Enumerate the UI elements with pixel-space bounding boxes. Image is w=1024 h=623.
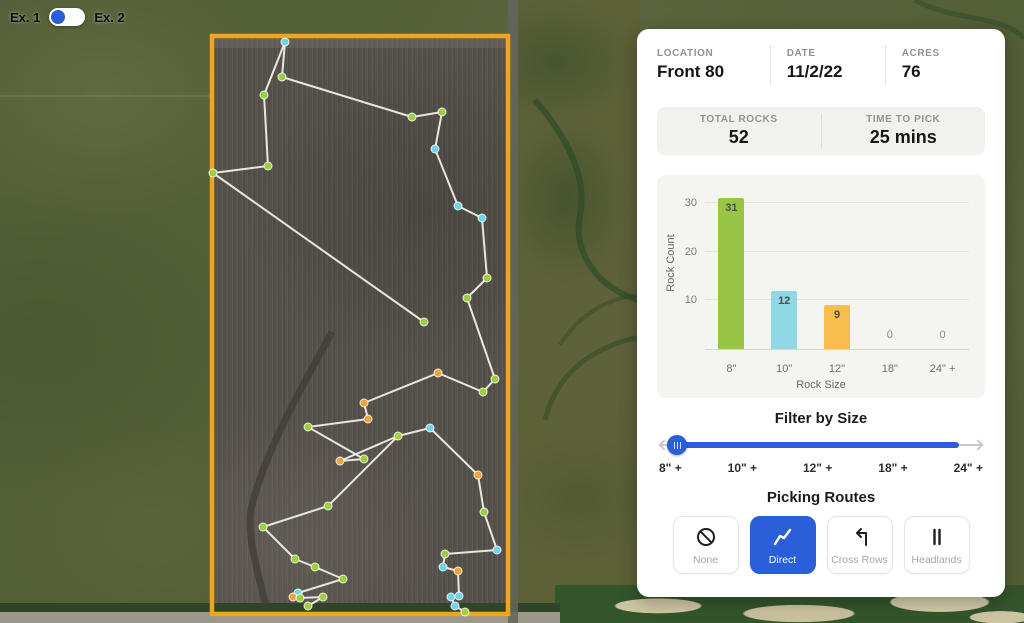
picking-routes-title: Picking Routes [657,489,985,506]
acres-value: 76 [902,62,985,82]
rock-marker-8in [408,113,416,121]
acres-label: ACRES [902,48,985,59]
picking-route-buttons: None Direct Cross Rows Headlands [657,516,985,574]
location-label: LOCATION [657,48,770,59]
rock-marker-10in [439,563,447,571]
rock-marker-8in [311,563,319,571]
zigzag-route-icon [771,525,795,549]
date-label: DATE [787,48,885,59]
bar-12": 9 [824,305,850,349]
rock-marker-10in [478,214,486,222]
time-to-pick-value: 25 mins [870,127,937,148]
rock-marker-12in [336,457,344,465]
example-1-label: Ex. 1 [10,10,40,25]
route-direct-button[interactable]: Direct [750,516,816,574]
rock-marker-10in [431,145,439,153]
size-filter-slider[interactable] [659,433,983,457]
location-field: LOCATION Front 80 [657,45,770,85]
rock-marker-8in [259,523,267,531]
rock-marker-8in [260,91,268,99]
creek [535,100,638,300]
picking-route-path [264,42,497,612]
example-2-label: Ex. 2 [94,10,124,25]
chart-x-axis-label: Rock Size [657,379,985,391]
rock-marker-12in [454,567,462,575]
rock-marker-8in [324,502,332,510]
turn-left-arrow-icon [848,525,872,549]
field-drainage-channel [250,332,332,614]
rock-marker-10in [426,424,434,432]
picking-route-path [213,95,424,322]
tick-24in: 24" + [954,461,983,475]
bar-10": 12 [771,291,797,350]
rock-marker-8in [463,294,471,302]
rock-marker-10in [447,593,455,601]
rock-marker-12in [434,369,442,377]
rock-marker-8in [319,593,327,601]
rock-marker-8in [291,555,299,563]
rock-marker-8in [264,162,272,170]
field-boundary [212,36,508,614]
time-to-pick-label: TIME TO PICK [866,114,940,125]
rock-marker-8in [296,594,304,602]
rock-marker-12in [474,471,482,479]
slider-selected-range [677,442,959,448]
route-cross-rows-label: Cross Rows [831,554,888,566]
rock-marker-12in [360,399,368,407]
route-headlands-button[interactable]: Headlands [904,516,970,574]
field-summary-header: LOCATION Front 80 DATE 11/2/22 ACRES 76 [657,45,985,85]
rock-marker-8in [483,274,491,282]
total-rocks-value: 52 [729,127,749,148]
rock-marker-8in [278,73,286,81]
rock-marker-8in [479,388,487,396]
route-cross-rows-button[interactable]: Cross Rows [827,516,893,574]
no-symbol-icon [694,525,718,549]
rock-marker-12in [364,415,372,423]
date-value: 11/2/22 [787,62,885,82]
rock-marker-8in [339,575,347,583]
total-rocks-label: TOTAL ROCKS [700,114,778,125]
rock-marker-8in [438,108,446,116]
rock-marker-8in [441,550,449,558]
totals-summary: TOTAL ROCKS 52 TIME TO PICK 25 mins [657,107,985,155]
tick-8in: 8" + [659,461,682,475]
picking-route-path [263,436,398,606]
chart-y-axis-label: Rock Count [665,223,677,303]
slider-right-arrow-icon [972,439,983,450]
toggle-knob [51,10,65,24]
example-toggle-group: Ex. 1 Ex. 2 [10,8,125,26]
size-filter-tick-labels: 8" + 10" + 12" + 18" + 24" + [657,461,985,475]
slider-handle[interactable] [667,435,687,455]
route-headlands-label: Headlands [911,554,961,566]
rock-marker-10in [451,602,459,610]
info-panel: LOCATION Front 80 DATE 11/2/22 ACRES 76 … [637,29,1005,597]
parallel-bars-icon [925,525,949,549]
filter-by-size-title: Filter by Size [657,410,985,427]
rock-marker-8in [461,608,469,616]
rock-marker-8in [480,508,488,516]
total-rocks-field: TOTAL ROCKS 52 [657,114,821,148]
location-value: Front 80 [657,62,770,82]
rock-marker-8in [304,423,312,431]
route-none-button[interactable]: None [673,516,739,574]
rock-marker-10in [455,592,463,600]
rock-marker-8in [491,375,499,383]
rock-marker-10in [281,38,289,46]
rock-marker-8in [209,169,217,177]
route-none-label: None [693,554,718,566]
rock-marker-10in [454,202,462,210]
rock-size-bar-chart: Rock Count 102030318"1210"912"018"024" +… [657,175,985,398]
bar-8": 31 [718,198,744,349]
rock-marker-8in [360,455,368,463]
rock-marker-10in [493,546,501,554]
tick-18in: 18" + [878,461,907,475]
tick-10in: 10" + [728,461,757,475]
rock-marker-8in [394,432,402,440]
example-toggle-switch[interactable] [49,8,85,26]
rock-marker-8in [304,602,312,610]
acres-field: ACRES 76 [885,45,985,85]
chart-plot-area: 102030318"1210"912"018"024" + [705,193,969,350]
date-field: DATE 11/2/22 [770,45,885,85]
tick-12in: 12" + [803,461,832,475]
route-direct-label: Direct [769,554,796,566]
time-to-pick-field: TIME TO PICK 25 mins [821,114,986,148]
rock-marker-8in [420,318,428,326]
